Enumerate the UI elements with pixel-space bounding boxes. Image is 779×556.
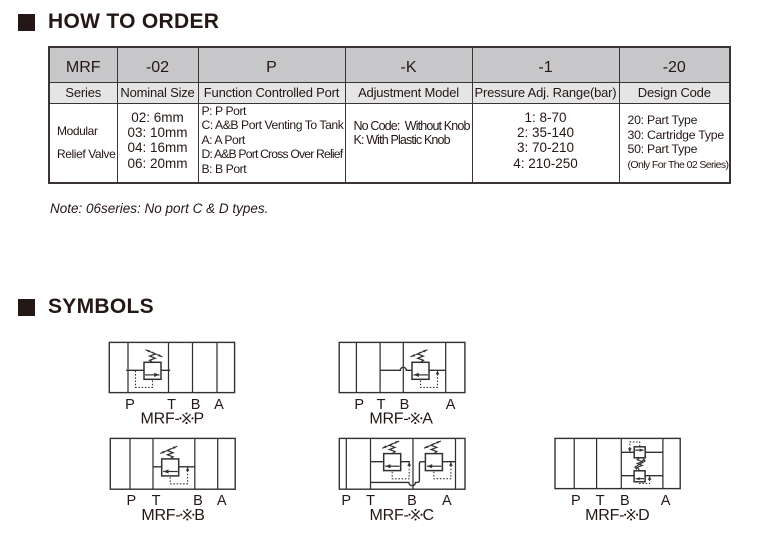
svg-text:MRF-: MRF- xyxy=(141,507,180,524)
svg-text:A: A xyxy=(217,493,227,509)
svg-text:A: A xyxy=(422,411,433,428)
svg-text:A: A xyxy=(442,493,452,509)
svg-text:MRF-: MRF- xyxy=(370,507,409,524)
svg-text:MRF-: MRF- xyxy=(141,411,180,428)
svg-text:P: P xyxy=(571,493,581,509)
svg-text:A: A xyxy=(214,397,224,413)
svg-text:A: A xyxy=(446,397,456,413)
svg-text:P: P xyxy=(125,397,135,413)
svg-text:A: A xyxy=(661,493,671,509)
svg-text:P: P xyxy=(126,493,136,509)
svg-text:P: P xyxy=(341,493,351,509)
svg-text:B: B xyxy=(194,507,205,524)
svg-text:MRF-: MRF- xyxy=(585,507,624,524)
svg-text:MRF-: MRF- xyxy=(369,411,408,428)
svg-text:P: P xyxy=(194,411,205,428)
svg-text:P: P xyxy=(354,397,364,413)
svg-text:C: C xyxy=(423,507,435,524)
svg-text:D: D xyxy=(638,507,650,524)
